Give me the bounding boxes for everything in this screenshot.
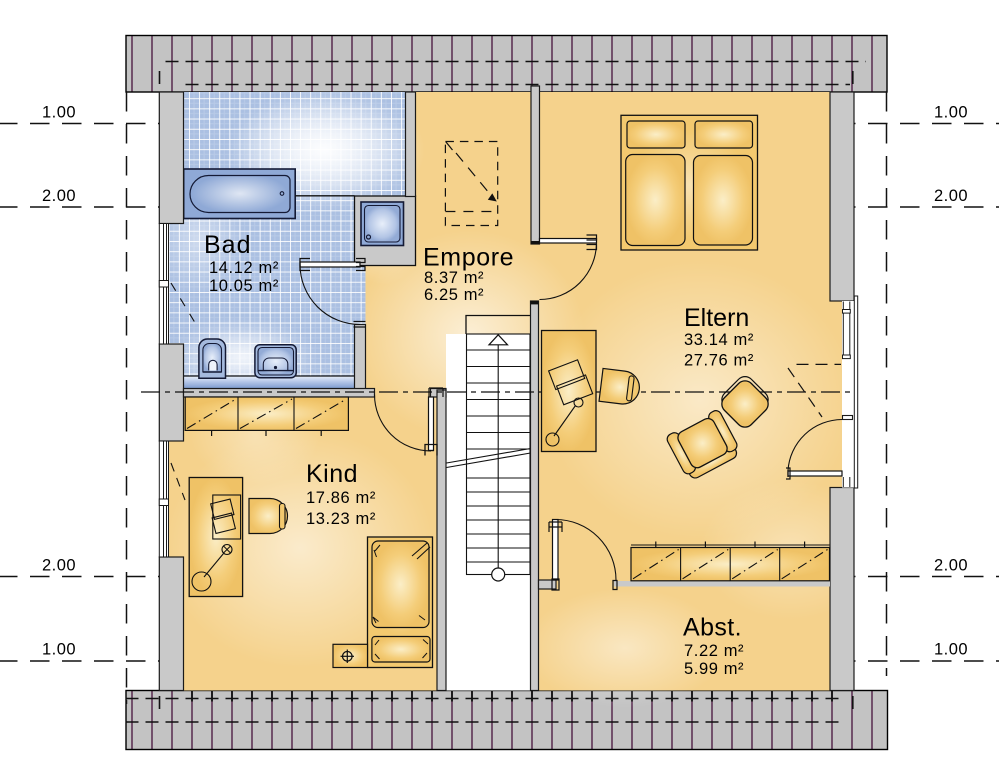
svg-text:2.00: 2.00 <box>42 187 76 205</box>
svg-text:7.22 m²: 7.22 m² <box>684 642 744 660</box>
svg-text:2.00: 2.00 <box>934 187 968 205</box>
svg-text:Eltern: Eltern <box>684 304 749 332</box>
svg-text:2.00: 2.00 <box>42 557 76 575</box>
svg-text:8.37 m²: 8.37 m² <box>424 269 484 287</box>
svg-text:1.00: 1.00 <box>42 641 76 659</box>
svg-text:2.00: 2.00 <box>934 557 968 575</box>
svg-text:1.00: 1.00 <box>42 104 76 122</box>
svg-text:10.05 m²: 10.05 m² <box>209 277 279 295</box>
svg-text:13.23 m²: 13.23 m² <box>306 510 376 528</box>
svg-text:Empore: Empore <box>423 244 514 272</box>
svg-text:6.25 m²: 6.25 m² <box>424 286 484 304</box>
svg-text:14.12 m²: 14.12 m² <box>209 259 279 277</box>
svg-text:1.00: 1.00 <box>934 641 968 659</box>
svg-text:Kind: Kind <box>306 460 358 488</box>
svg-text:33.14 m²: 33.14 m² <box>684 331 754 349</box>
svg-text:17.86 m²: 17.86 m² <box>306 489 376 507</box>
svg-text:1.00: 1.00 <box>934 104 968 122</box>
svg-text:5.99 m²: 5.99 m² <box>684 660 744 678</box>
svg-text:Abst.: Abst. <box>683 614 742 642</box>
svg-text:27.76 m²: 27.76 m² <box>684 352 754 370</box>
svg-text:Bad: Bad <box>204 231 251 259</box>
